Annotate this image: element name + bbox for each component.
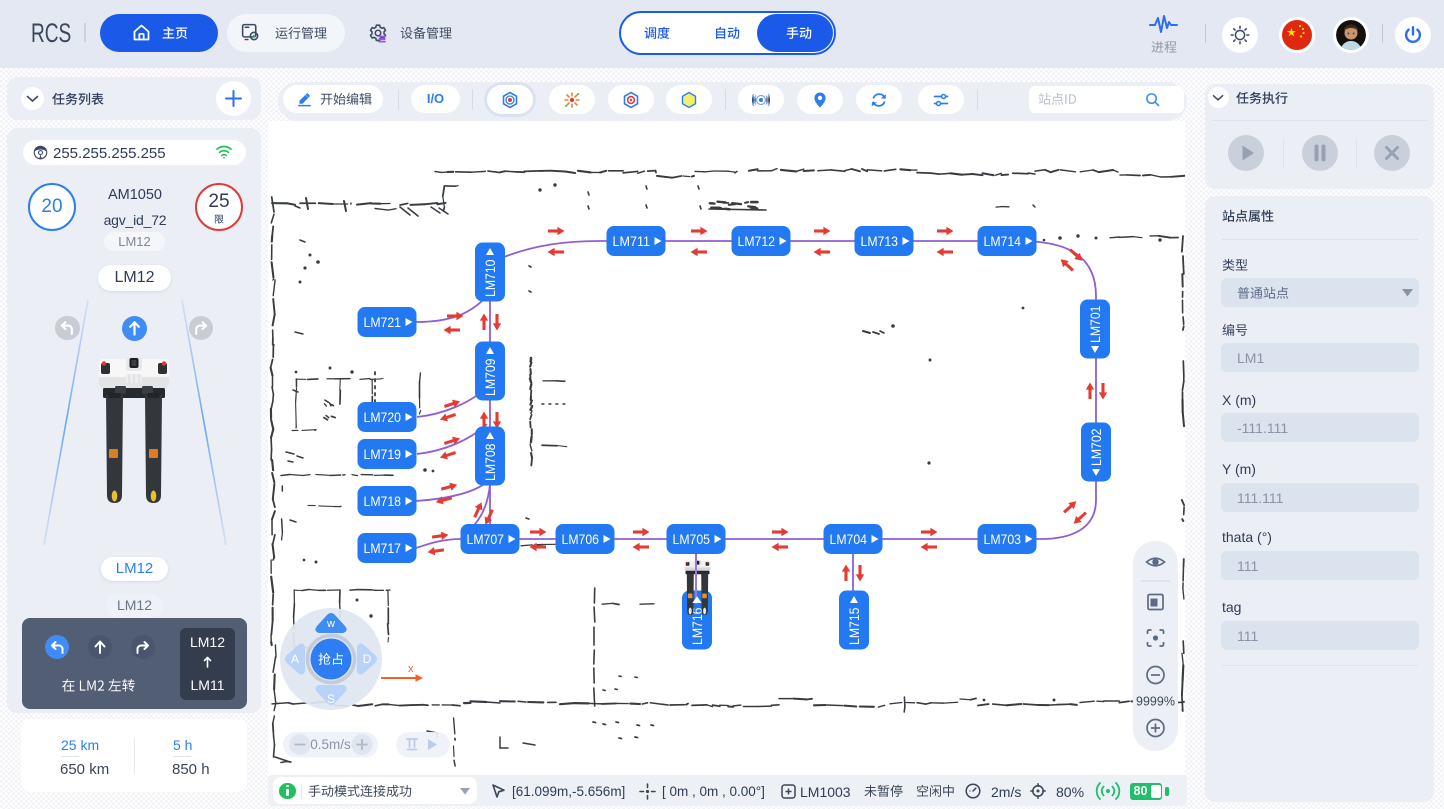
svg-text:LM709: LM709 — [482, 358, 498, 396]
svg-text:LM703: LM703 — [984, 531, 1022, 547]
svg-text:LM708: LM708 — [482, 443, 498, 481]
svg-text:LM705: LM705 — [673, 531, 711, 547]
svg-text:LM706: LM706 — [562, 531, 600, 547]
svg-text:LM702: LM702 — [1088, 428, 1104, 466]
svg-text:LM701: LM701 — [1087, 305, 1103, 343]
svg-text:LM720: LM720 — [364, 409, 402, 425]
svg-text:A: A — [291, 652, 299, 666]
svg-text:LM713: LM713 — [861, 233, 899, 249]
svg-text:S: S — [327, 692, 335, 706]
svg-text:LM707: LM707 — [467, 531, 505, 547]
svg-text:w: w — [326, 618, 335, 630]
svg-text:x: x — [408, 663, 414, 675]
svg-text:D: D — [363, 652, 372, 666]
svg-text:9999%: 9999% — [1136, 695, 1175, 709]
svg-text:LM715: LM715 — [846, 607, 862, 645]
svg-text:LM710: LM710 — [482, 259, 498, 297]
svg-text:0.5m/s: 0.5m/s — [310, 737, 351, 752]
svg-text:LM704: LM704 — [830, 531, 868, 547]
svg-text:LM712: LM712 — [738, 233, 776, 249]
svg-text:LM717: LM717 — [364, 540, 402, 556]
svg-text:LM718: LM718 — [364, 493, 402, 509]
svg-text:LM711: LM711 — [613, 233, 651, 249]
svg-text:LM714: LM714 — [984, 233, 1022, 249]
svg-text:LM721: LM721 — [364, 314, 402, 330]
svg-text:LM719: LM719 — [364, 446, 402, 462]
